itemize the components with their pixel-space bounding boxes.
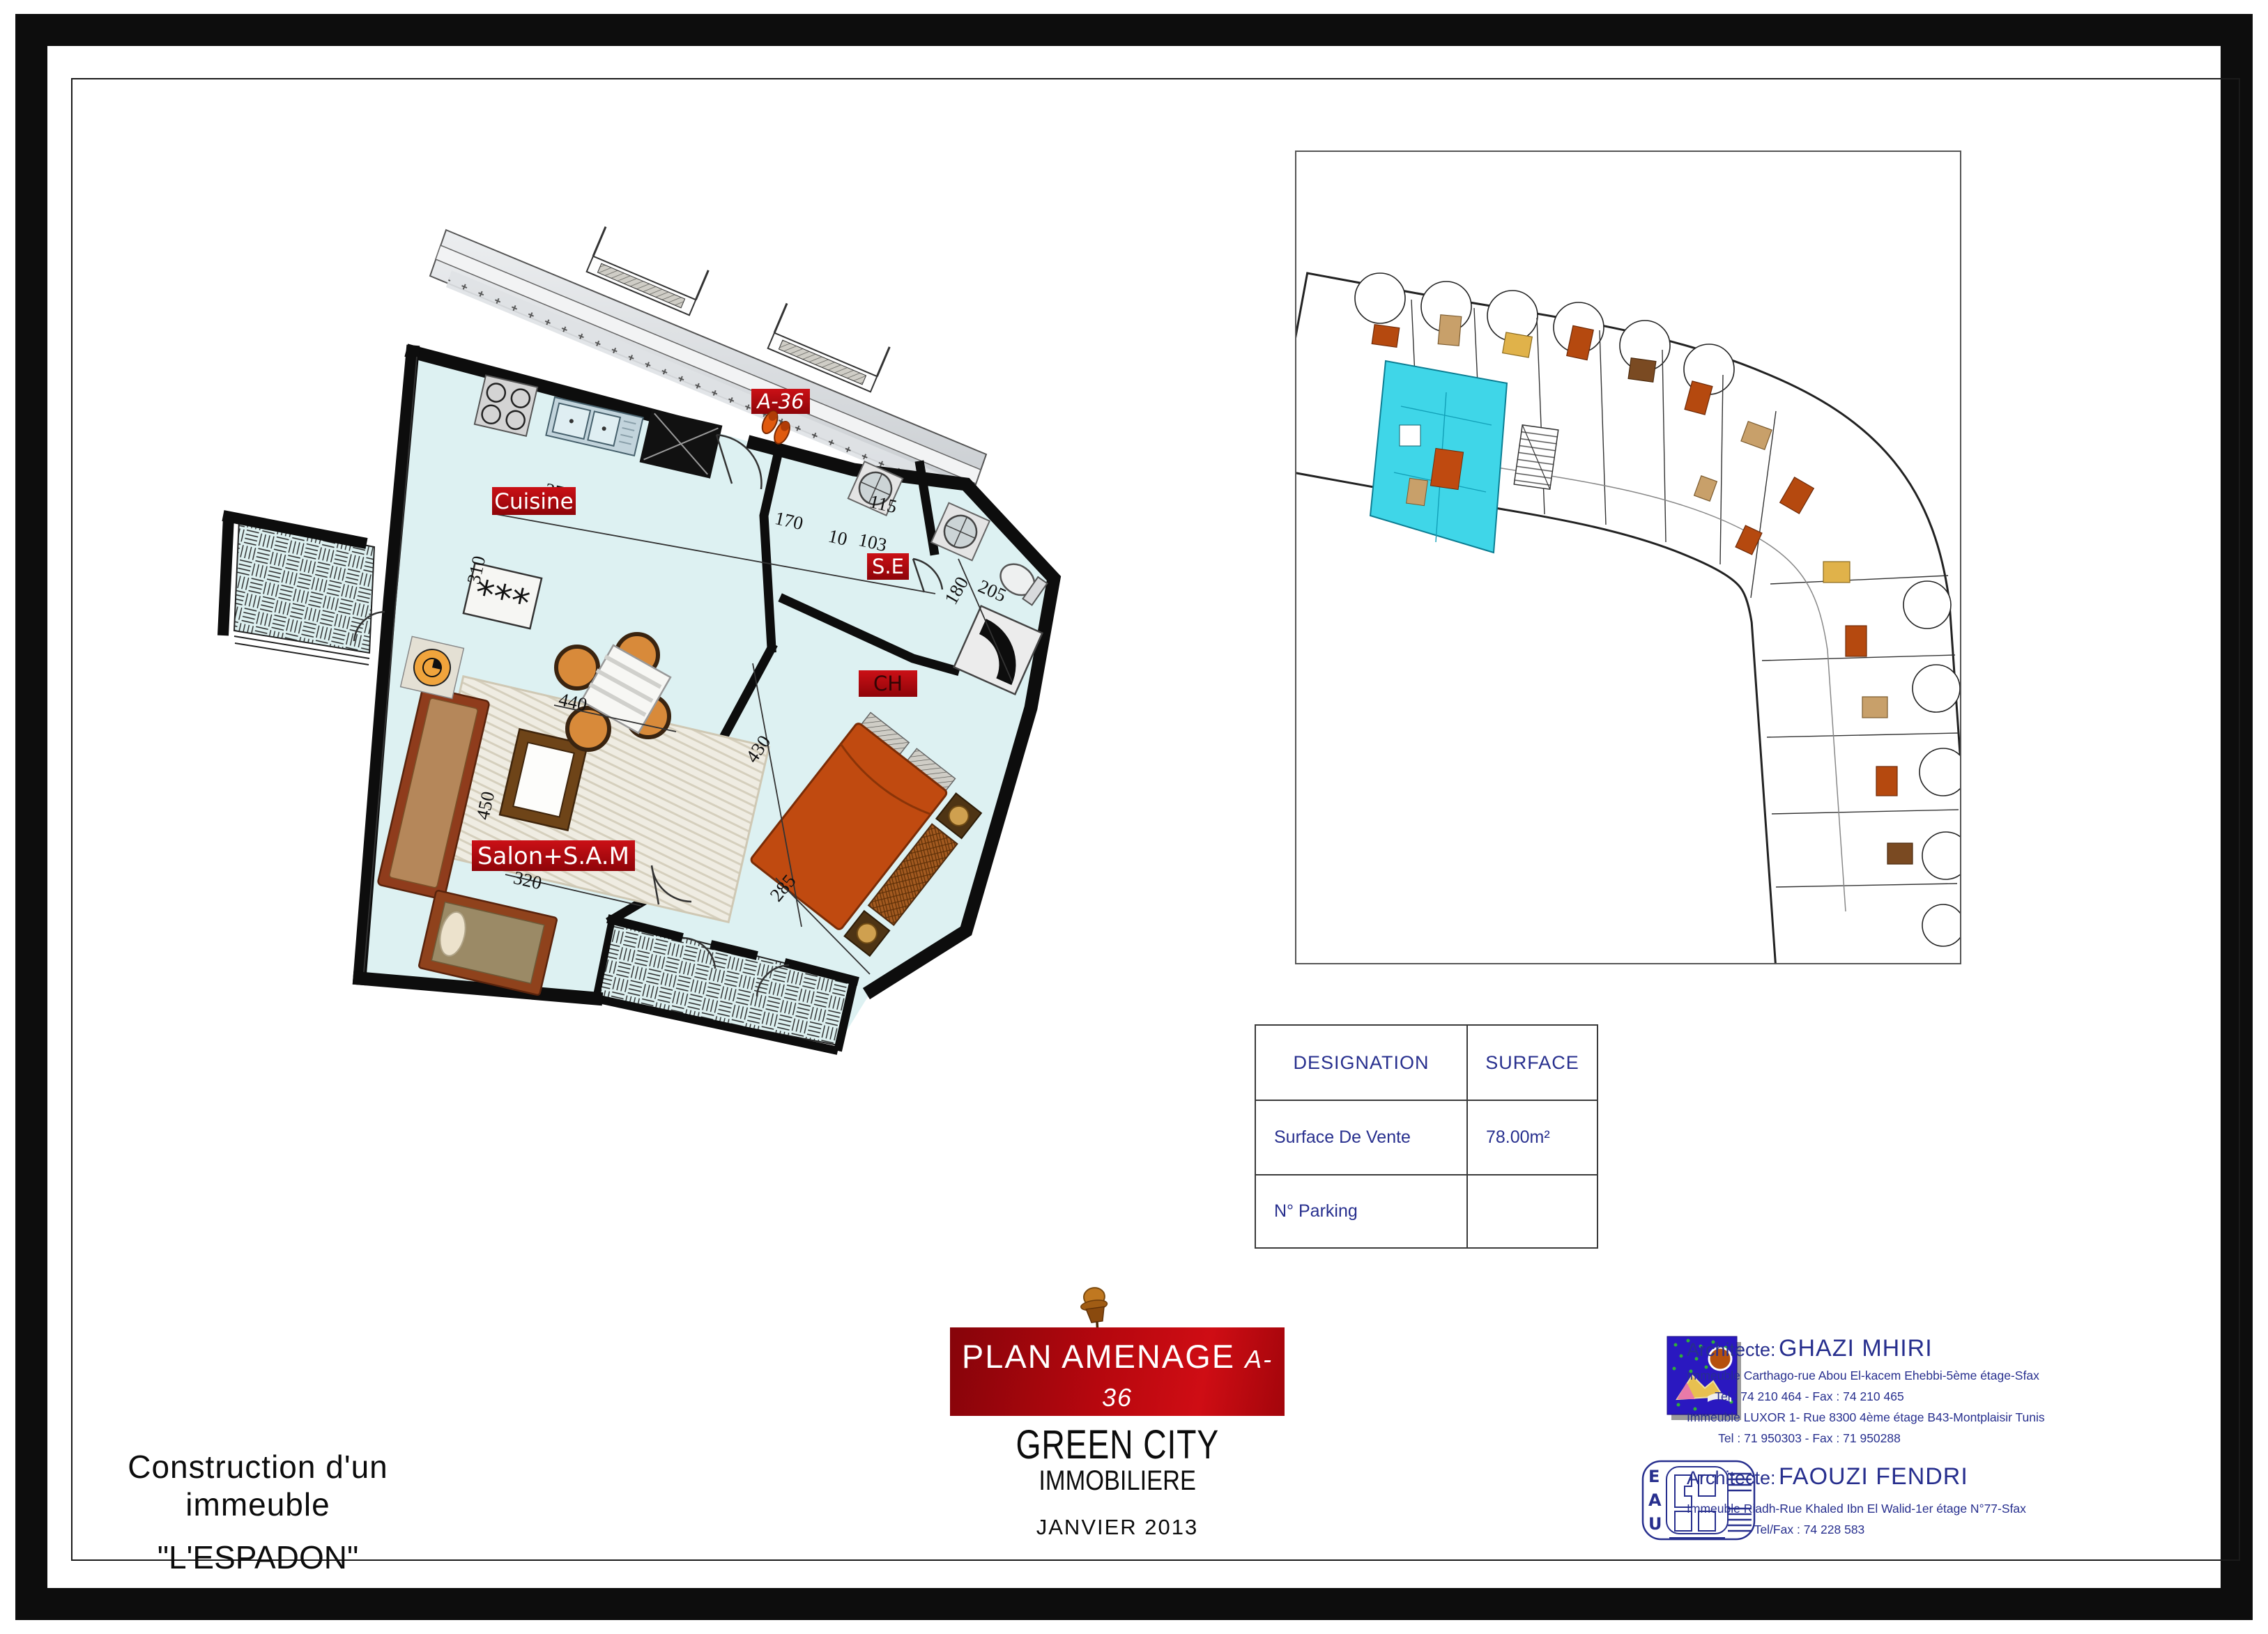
table-header-surface: SURFACE bbox=[1467, 1025, 1597, 1100]
architect1-address1: Immeuble Carthago-rue Abou El-kacem Eheb… bbox=[1687, 1369, 1932, 1383]
title-banner: PLAN AMENAGEA-36 3 éme ETAGE bbox=[950, 1327, 1285, 1416]
cell-surface: 78.00m² bbox=[1467, 1100, 1597, 1175]
table-row: Surface De Vente 78.00m² bbox=[1255, 1100, 1597, 1175]
label-ch: CH bbox=[873, 672, 903, 695]
architect2-address: Immeuble Riadh-Rue Khaled Ibn El Walid-1… bbox=[1687, 1502, 1932, 1516]
label-unit: A-36 bbox=[756, 390, 804, 413]
architect1-phone1: Tel : 74 210 464 - Fax : 74 210 465 bbox=[1687, 1389, 1932, 1404]
table-header-designation: DESIGNATION bbox=[1255, 1025, 1467, 1100]
architect2-phone: Tel/Fax : 74 228 583 bbox=[1687, 1523, 1932, 1537]
floor-overview-plan bbox=[1295, 151, 1961, 964]
highlighted-unit-a36 bbox=[1370, 361, 1507, 553]
architect1-address2: Immeuble LUXOR 1- Rue 8300 4ème étage B4… bbox=[1687, 1410, 1932, 1425]
surface-table: DESIGNATION SURFACE Surface De Vente 78.… bbox=[1255, 1024, 1598, 1249]
label-se: S.E bbox=[872, 555, 904, 578]
label-salon: Salon+S.A.M bbox=[477, 842, 629, 870]
side-table bbox=[401, 636, 464, 698]
stair-core bbox=[1514, 425, 1558, 489]
company-name: GREEN CITY bbox=[1016, 1421, 1219, 1468]
architect1-block: Architecte: GHAZI MHIRI Immeuble Carthag… bbox=[1687, 1335, 1932, 1446]
stove bbox=[475, 376, 537, 436]
label-cuisine: Cuisine bbox=[494, 489, 573, 514]
project-title-line2: "L'ESPADON" bbox=[56, 1539, 460, 1576]
cell-designation: N° Parking bbox=[1255, 1175, 1467, 1248]
cell-designation: Surface De Vente bbox=[1255, 1100, 1467, 1175]
architect2-block: Architecte: FAOUZI FENDRI Immeuble Riadh… bbox=[1687, 1463, 1932, 1537]
table-row: N° Parking bbox=[1255, 1175, 1597, 1248]
apartment-floor-plan: *** bbox=[195, 202, 1101, 1122]
banner-title: PLAN AMENAGE bbox=[962, 1338, 1235, 1375]
svg-text:E: E bbox=[1648, 1467, 1660, 1486]
drawing-date: JANVIER 2013 bbox=[950, 1515, 1285, 1540]
terrace bbox=[223, 516, 374, 665]
architect1-name: GHAZI MHIRI bbox=[1779, 1335, 1933, 1362]
company-block: GREEN CITY IMMOBILIERE JANVIER 2013 bbox=[950, 1421, 1285, 1540]
company-type: IMMOBILIERE bbox=[1039, 1465, 1196, 1497]
drawing-sheet: *** bbox=[0, 0, 2268, 1634]
architect1-prefix: Architecte: bbox=[1687, 1339, 1776, 1360]
architect2-name: FAOUZI FENDRI bbox=[1779, 1463, 1968, 1490]
project-title-line1: Construction d'un immeuble bbox=[56, 1448, 460, 1523]
architect1-phone2: Tel : 71 950303 - Fax : 71 950288 bbox=[1687, 1431, 1932, 1446]
architect2-prefix: Architecte: bbox=[1687, 1467, 1776, 1488]
cell-surface bbox=[1467, 1175, 1597, 1248]
project-title: Construction d'un immeuble "L'ESPADON" bbox=[56, 1448, 460, 1576]
svg-text:U: U bbox=[1648, 1514, 1662, 1534]
svg-text:A: A bbox=[1648, 1490, 1662, 1510]
